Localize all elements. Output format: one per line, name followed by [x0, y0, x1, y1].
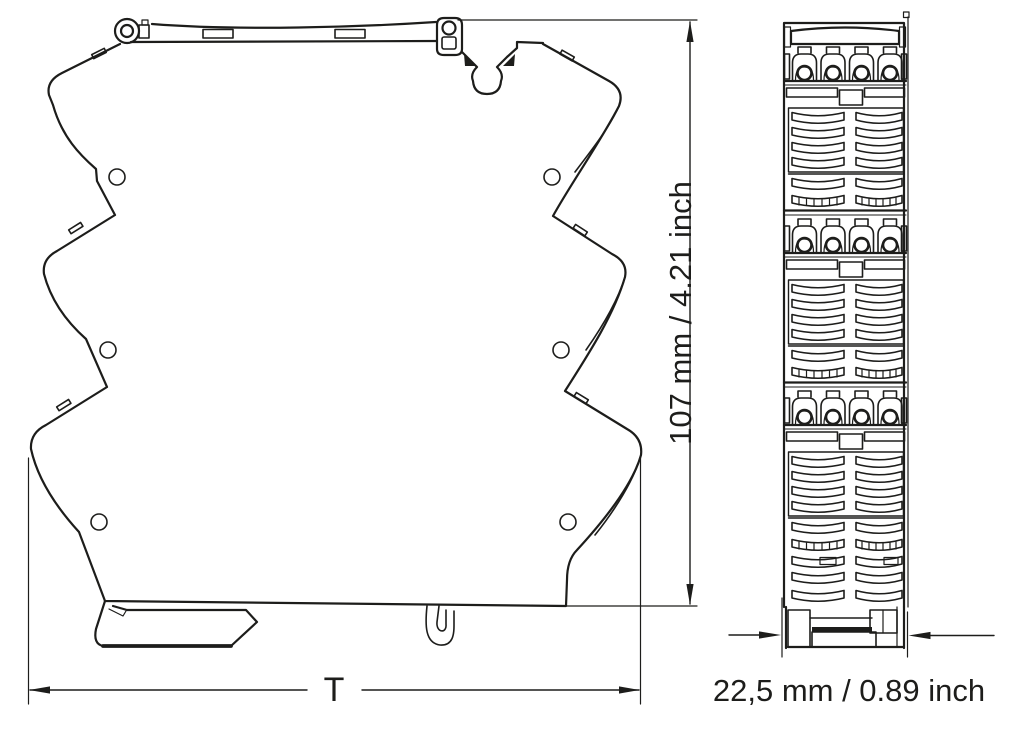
side-top-edge-lower	[131, 41, 437, 42]
front-foot	[786, 607, 904, 648]
technical-drawing: 107 mm / 4.21 inch T 22,5 mm / 0.89 inch	[0, 0, 1012, 733]
side-view	[31, 18, 641, 646]
arrowhead-down	[686, 584, 693, 605]
front-view	[784, 12, 909, 648]
terminal-group	[784, 219, 907, 378]
screw-holes	[91, 169, 576, 530]
din-rail-foot	[95, 601, 257, 646]
terminal-group	[784, 391, 907, 550]
terminal-group	[784, 47, 907, 206]
side-top-edge-upper	[152, 22, 436, 28]
right-latch	[437, 18, 462, 55]
left-latch	[115, 19, 149, 43]
height-dimension-label: 107 mm / 4.21 inch	[663, 181, 698, 445]
arrowhead-up	[686, 21, 693, 42]
front-bottom-vents	[792, 557, 902, 602]
group-boundary	[784, 211, 906, 216]
arrowhead-right-inward	[759, 631, 781, 638]
arrowhead-left	[29, 686, 50, 693]
dimension-module-width: 22,5 mm / 0.89 inch	[713, 598, 994, 708]
side-body-outline	[31, 44, 641, 606]
group-boundary	[784, 383, 906, 388]
dimension-height: 107 mm / 4.21 inch	[458, 20, 698, 606]
front-top-bar	[785, 27, 906, 47]
bottom-hook	[426, 606, 454, 645]
module-width-dimension-label: 22,5 mm / 0.89 inch	[713, 673, 985, 708]
din-rail-claw-cutout	[462, 42, 543, 94]
side-top-slot	[203, 30, 233, 39]
side-top-slot	[335, 30, 365, 39]
arrowhead-left-inward	[909, 632, 931, 639]
edge-notches	[57, 48, 589, 410]
arrowhead-right	[619, 686, 640, 693]
dimension-total-width: T	[29, 458, 641, 709]
dimensional-drawing-canvas: 107 mm / 4.21 inch T 22,5 mm / 0.89 inch	[0, 0, 1012, 733]
total-width-dimension-label: T	[324, 671, 345, 709]
